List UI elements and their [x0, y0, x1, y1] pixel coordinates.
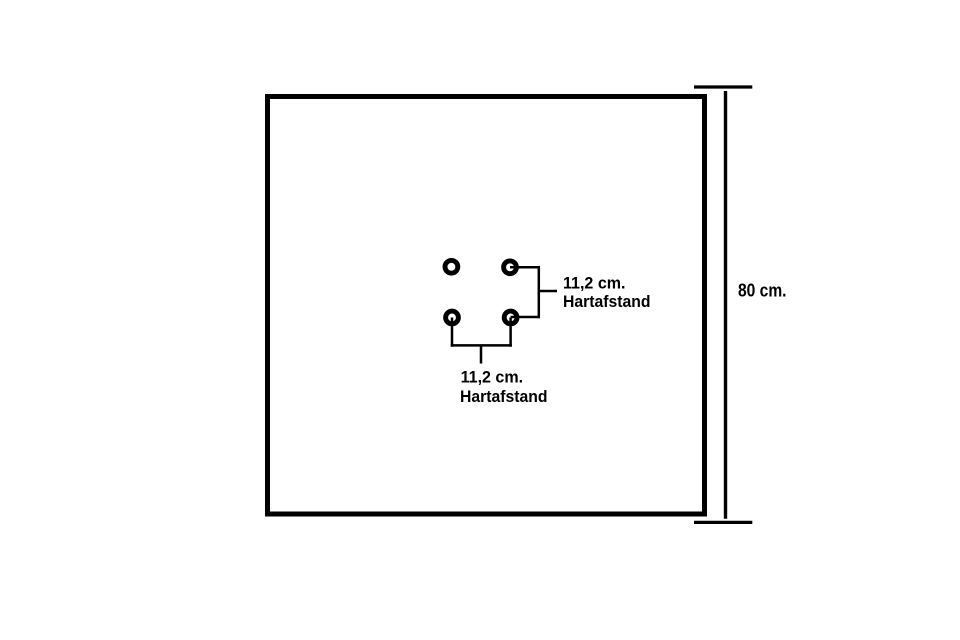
svg-text:11,2 cm.: 11,2 cm. — [461, 369, 523, 387]
svg-text:Hartafstand: Hartafstand — [460, 388, 548, 406]
svg-text:80 cm.: 80 cm. — [738, 281, 787, 301]
svg-text:11,2 cm.: 11,2 cm. — [563, 274, 626, 292]
svg-text:Hartafstand: Hartafstand — [563, 293, 651, 311]
